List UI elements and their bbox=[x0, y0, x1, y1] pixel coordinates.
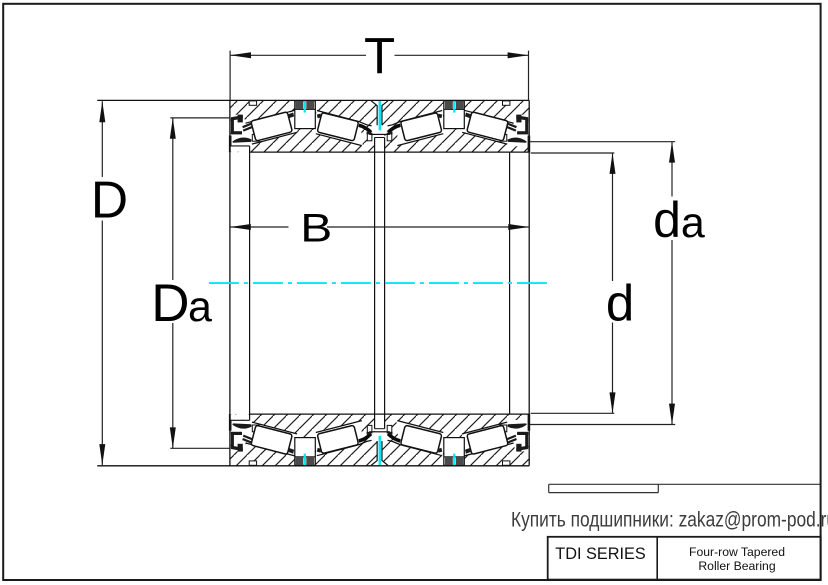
svg-text:B: B bbox=[300, 206, 332, 250]
svg-text:D: D bbox=[91, 170, 128, 228]
svg-text:TDI SERIES: TDI SERIES bbox=[555, 545, 646, 563]
svg-text:T: T bbox=[364, 28, 395, 85]
svg-text:Da: Da bbox=[151, 274, 212, 333]
svg-text:Roller Bearing: Roller Bearing bbox=[698, 559, 775, 573]
svg-text:da: da bbox=[653, 192, 705, 248]
svg-text:Four-row Tapered: Four-row Tapered bbox=[689, 545, 785, 559]
svg-text:d: d bbox=[606, 274, 634, 331]
svg-text:Купить подшипники: zakaz@prom-: Купить подшипники: zakaz@prom-pod.ru bbox=[511, 509, 828, 532]
